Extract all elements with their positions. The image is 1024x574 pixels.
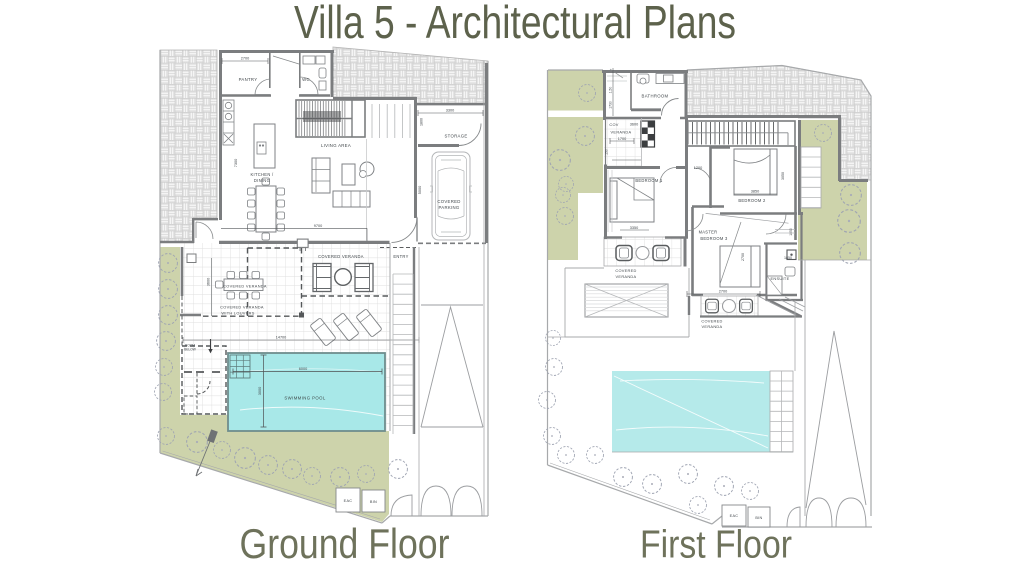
- svg-text:1850: 1850: [784, 256, 792, 260]
- svg-text:VERANDA: VERANDA: [611, 130, 632, 135]
- svg-text:2700: 2700: [741, 253, 745, 261]
- svg-text:PARKING: PARKING: [438, 205, 459, 210]
- svg-text:EAC: EAC: [344, 499, 353, 503]
- svg-text:COVERED: COVERED: [615, 268, 636, 273]
- svg-text:BELOW: BELOW: [184, 348, 196, 352]
- svg-text:3850: 3850: [751, 190, 759, 194]
- svg-text:COVERED: COVERED: [437, 199, 460, 204]
- svg-text:1,50: 1,50: [609, 87, 613, 94]
- svg-text:BEDROOM 1: BEDROOM 1: [635, 178, 663, 183]
- svg-text:3350: 3350: [630, 226, 638, 230]
- svg-text:Villa 5 - Architectural Plans: Villa 5 - Architectural Plans: [294, 0, 736, 48]
- svg-text:MASTER: MASTER: [699, 230, 718, 235]
- svg-text:STORAGE: STORAGE: [444, 134, 467, 139]
- svg-text:DINING: DINING: [254, 178, 270, 183]
- svg-text:SWIMMING POOL: SWIMMING POOL: [284, 396, 325, 401]
- svg-text:COVERED VERANDA: COVERED VERANDA: [220, 305, 264, 310]
- svg-text:WITH LOUVERS: WITH LOUVERS: [221, 311, 254, 316]
- svg-text:150: 150: [605, 149, 609, 155]
- svg-text:5000: 5000: [418, 186, 422, 194]
- svg-text:1800: 1800: [420, 118, 424, 126]
- svg-text:First Floor: First Floor: [640, 524, 792, 567]
- svg-text:COVERED VERANDA: COVERED VERANDA: [223, 284, 267, 289]
- svg-text:COV: COV: [609, 122, 618, 127]
- svg-text:3000: 3000: [258, 387, 262, 395]
- svg-text:KITCHEN /: KITCHEN /: [251, 172, 275, 177]
- svg-text:WC: WC: [302, 77, 310, 82]
- svg-text:2700: 2700: [719, 290, 727, 294]
- svg-text:PANTRY: PANTRY: [239, 77, 258, 82]
- svg-text:7300: 7300: [234, 159, 238, 167]
- svg-text:BIN: BIN: [755, 516, 762, 520]
- svg-text:EAC: EAC: [730, 514, 739, 518]
- svg-text:9700: 9700: [314, 224, 322, 228]
- svg-text:VERANDA: VERANDA: [702, 324, 723, 329]
- svg-text:BEDROOM 3: BEDROOM 3: [700, 236, 728, 241]
- svg-text:LIVING AREA: LIVING AREA: [321, 143, 351, 148]
- svg-text:COVERED: COVERED: [701, 319, 722, 324]
- svg-text:Ground Floor: Ground Floor: [240, 520, 450, 567]
- svg-text:BIN: BIN: [370, 500, 377, 504]
- svg-text:3600: 3600: [207, 278, 211, 286]
- svg-text:1730: 1730: [609, 101, 613, 109]
- svg-text:ENTRY: ENTRY: [393, 254, 408, 259]
- svg-text:3050: 3050: [781, 172, 785, 180]
- svg-text:3300: 3300: [446, 109, 454, 113]
- svg-text:6000: 6000: [299, 367, 307, 371]
- svg-text:2700: 2700: [241, 57, 249, 61]
- svg-text:COVERED VERANDA: COVERED VERANDA: [318, 254, 364, 259]
- svg-text:1050: 1050: [789, 228, 793, 236]
- svg-text:BATHROOM: BATHROOM: [642, 94, 669, 99]
- svg-text:1700: 1700: [618, 137, 626, 141]
- svg-text:14700: 14700: [276, 336, 287, 340]
- svg-text:VERANDA: VERANDA: [616, 274, 637, 279]
- svg-text:ENSUITE: ENSUITE: [771, 276, 790, 281]
- svg-text:BEDROOM 2: BEDROOM 2: [738, 198, 766, 203]
- svg-text:3600: 3600: [630, 123, 638, 127]
- svg-text:1200: 1200: [694, 166, 702, 170]
